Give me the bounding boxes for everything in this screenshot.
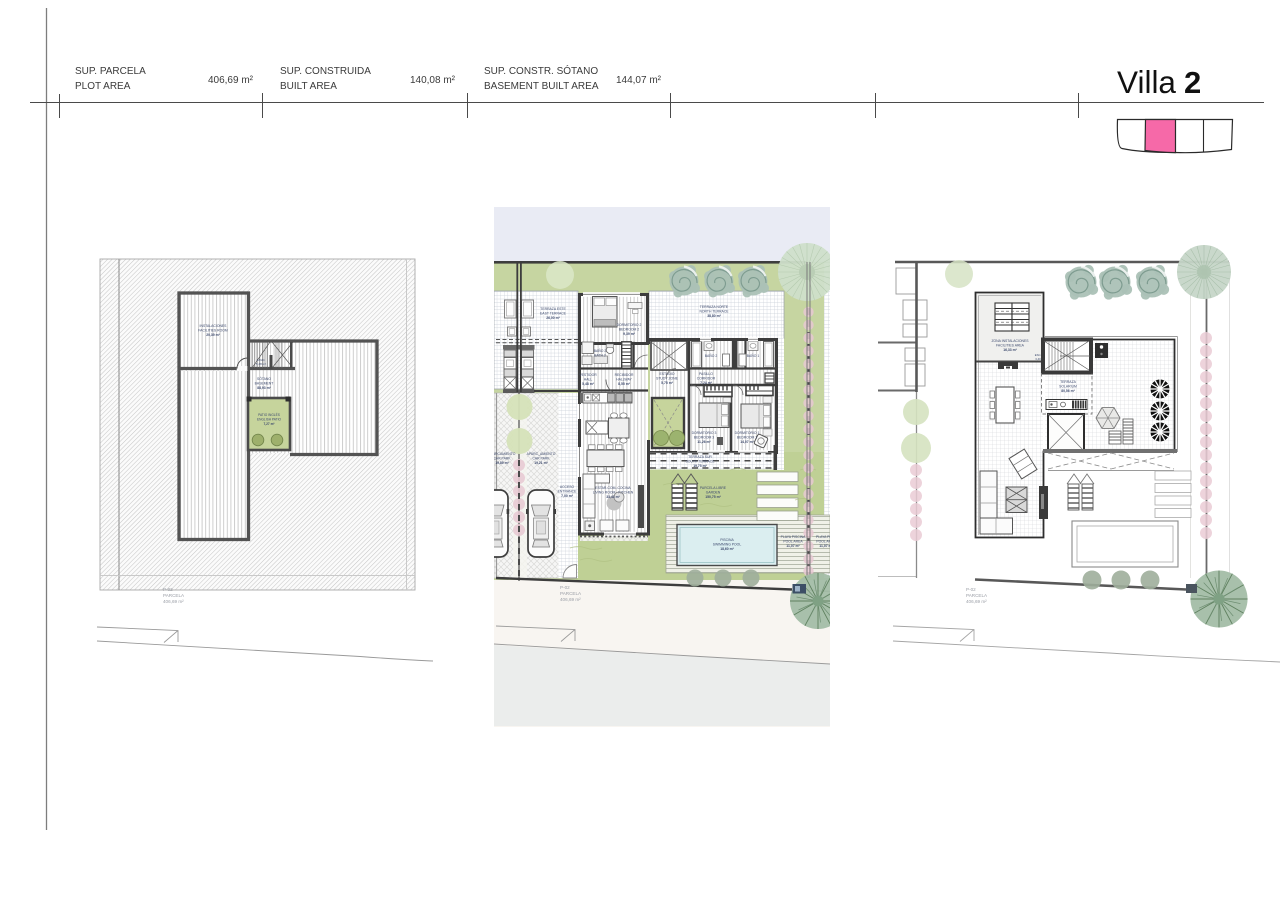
svg-text:8,55 m²: 8,55 m² <box>618 382 631 386</box>
svg-text:406,69 m²: 406,69 m² <box>208 75 254 86</box>
svg-text:BASEMENT BUILT AREA: BASEMENT BUILT AREA <box>484 81 599 92</box>
svg-text:33,43 m²: 33,43 m² <box>606 495 620 499</box>
svg-text:SWIMMING POOL: SWIMMING POOL <box>713 543 742 547</box>
svg-text:80,56 m²: 80,56 m² <box>1061 389 1075 393</box>
svg-text:BEDROOM 2: BEDROOM 2 <box>619 328 639 332</box>
svg-text:PASILLO: PASILLO <box>699 372 713 376</box>
svg-text:TERRAZA: TERRAZA <box>1060 380 1077 384</box>
svg-text:EAST TERRACE: EAST TERRACE <box>540 312 567 316</box>
svg-text:PARCELA: PARCELA <box>560 591 582 596</box>
svg-text:11,07 m²: 11,07 m² <box>786 544 800 548</box>
svg-text:TERRAZA SUR: TERRAZA SUR <box>688 455 712 459</box>
svg-text:140,08 m²: 140,08 m² <box>410 75 456 86</box>
svg-text:19,89 m²: 19,89 m² <box>495 461 509 465</box>
svg-text:FACILITIES AREA: FACILITIES AREA <box>996 344 1025 348</box>
svg-text:9,39 m²: 9,39 m² <box>623 332 636 336</box>
svg-text:TERRAZA ESTE: TERRAZA ESTE <box>540 307 566 311</box>
svg-text:SUP. CONSTRUIDA: SUP. CONSTRUIDA <box>280 66 371 77</box>
svg-text:5,75 m²: 5,75 m² <box>661 381 674 385</box>
svg-text:19,21 m²: 19,21 m² <box>534 461 548 465</box>
svg-text:LIVING ROOM - KITCHEN: LIVING ROOM - KITCHEN <box>593 491 634 495</box>
svg-text:38,80 m²: 38,80 m² <box>707 314 721 318</box>
svg-text:7,24 m²: 7,24 m² <box>700 381 713 385</box>
svg-text:FACILITIES ROOM: FACILITIES ROOM <box>198 329 228 333</box>
svg-text:CORRIDOR: CORRIDOR <box>697 377 716 381</box>
svg-text:CAR PARK: CAR PARK <box>532 457 550 461</box>
svg-text:18,60 m²: 18,60 m² <box>720 547 734 551</box>
svg-text:SOUTH TERRACE: SOUTH TERRACE <box>686 460 716 464</box>
svg-text:19,75 m²: 19,75 m² <box>693 464 707 468</box>
svg-text:APARC_AMIENTO: APARC_AMIENTO <box>527 452 556 456</box>
svg-text:PLAYA PISCINA: PLAYA PISCINA <box>781 535 806 539</box>
svg-text:INSTALACIONES: INSTALACIONES <box>200 324 228 328</box>
svg-text:BAÑO 2: BAÑO 2 <box>705 353 718 358</box>
svg-text:PISCINA: PISCINA <box>720 538 734 542</box>
svg-text:5,48 m²: 5,48 m² <box>256 362 266 366</box>
svg-text:DORMITORIO 2: DORMITORIO 2 <box>617 323 642 327</box>
svg-text:ACCESO: ACCESO <box>560 485 575 489</box>
svg-text:P-02: P-02 <box>966 587 976 592</box>
svg-text:BEDROOM 3: BEDROOM 3 <box>694 436 714 440</box>
svg-text:GARDEN: GARDEN <box>706 491 721 495</box>
svg-text:406,69 m²: 406,69 m² <box>163 599 184 604</box>
svg-text:7,27 m²: 7,27 m² <box>264 422 275 426</box>
svg-text:14,07 m²: 14,07 m² <box>740 440 754 444</box>
svg-text:PARCELA: PARCELA <box>163 593 185 598</box>
svg-text:SUP. PARCELA: SUP. PARCELA <box>75 66 146 77</box>
svg-text:11,26 m²: 11,26 m² <box>697 440 711 444</box>
svg-text:20,39 m²: 20,39 m² <box>206 333 220 337</box>
svg-text:ESTUDIO: ESTUDIO <box>659 372 674 376</box>
svg-text:88,93 m²: 88,93 m² <box>257 386 271 390</box>
svg-text:5,48 m²: 5,48 m² <box>582 382 595 386</box>
svg-text:26,00 m²: 26,00 m² <box>546 316 560 320</box>
svg-text:CAR PARK: CAR PARK <box>493 457 511 461</box>
svg-text:P-02: P-02 <box>163 587 173 592</box>
svg-text:PARCELA LIBRE: PARCELA LIBRE <box>700 486 727 490</box>
svg-text:PATIO INGLÉS: PATIO INGLÉS <box>258 412 280 417</box>
svg-text:BUILT AREA: BUILT AREA <box>280 81 337 92</box>
svg-text:SOLARIUM: SOLARIUM <box>1059 385 1077 389</box>
svg-text:SUP. CONSTR. SÓTANO: SUP. CONSTR. SÓTANO <box>484 64 598 77</box>
svg-text:ZONA INSTALACIONES: ZONA INSTALACIONES <box>991 339 1029 343</box>
svg-text:ESTAR-COM.-COCINA: ESTAR-COM.-COCINA <box>595 486 631 490</box>
svg-text:ENTRANCE: ENTRANCE <box>558 490 577 494</box>
svg-text:POOL AREA: POOL AREA <box>783 540 803 544</box>
svg-text:VESTIDOR: VESTIDOR <box>579 373 597 377</box>
svg-text:BATH 2: BATH 2 <box>594 354 606 358</box>
svg-text:NORTH TERRACE: NORTH TERRACE <box>699 310 729 314</box>
svg-text:ENGLISH PATIO: ENGLISH PATIO <box>257 418 281 422</box>
svg-text:BAÑO 1: BAÑO 1 <box>747 353 760 358</box>
svg-text:Villa: Villa <box>1117 64 1176 100</box>
svg-text:16,33 m²: 16,33 m² <box>1003 348 1017 352</box>
svg-text:144,07 m²: 144,07 m² <box>616 75 662 86</box>
svg-text:STUDY ZONE: STUDY ZONE <box>656 377 679 381</box>
svg-text:3,40: 3,40 <box>1035 357 1041 361</box>
svg-text:BAÑO 2: BAÑO 2 <box>594 348 607 353</box>
svg-text:PARCELA: PARCELA <box>966 593 988 598</box>
svg-text:P-02: P-02 <box>560 585 570 590</box>
svg-text:2: 2 <box>1184 65 1201 100</box>
svg-text:406,69 m²: 406,69 m² <box>560 597 581 602</box>
svg-text:150,75 m²: 150,75 m² <box>705 495 721 499</box>
svg-text:406,69 m²: 406,69 m² <box>966 599 987 604</box>
svg-text:DORMITORIO 1: DORMITORIO 1 <box>735 431 760 435</box>
svg-text:DORMITORIO 3: DORMITORIO 3 <box>692 431 717 435</box>
svg-text:SÓTANO: SÓTANO <box>257 376 271 381</box>
svg-text:7,00 m²: 7,00 m² <box>561 494 574 498</box>
svg-text:PLOT AREA: PLOT AREA <box>75 81 131 92</box>
svg-text:HALL: HALL <box>584 378 593 382</box>
svg-text:BASEMENT: BASEMENT <box>255 382 274 386</box>
svg-text:HALLWAY: HALLWAY <box>616 378 632 382</box>
svg-text:TERRAZA NORTE: TERRAZA NORTE <box>700 305 729 309</box>
svg-text:BEDROOM 1: BEDROOM 1 <box>737 436 757 440</box>
svg-text:RECIBIDOR: RECIBIDOR <box>615 373 634 377</box>
